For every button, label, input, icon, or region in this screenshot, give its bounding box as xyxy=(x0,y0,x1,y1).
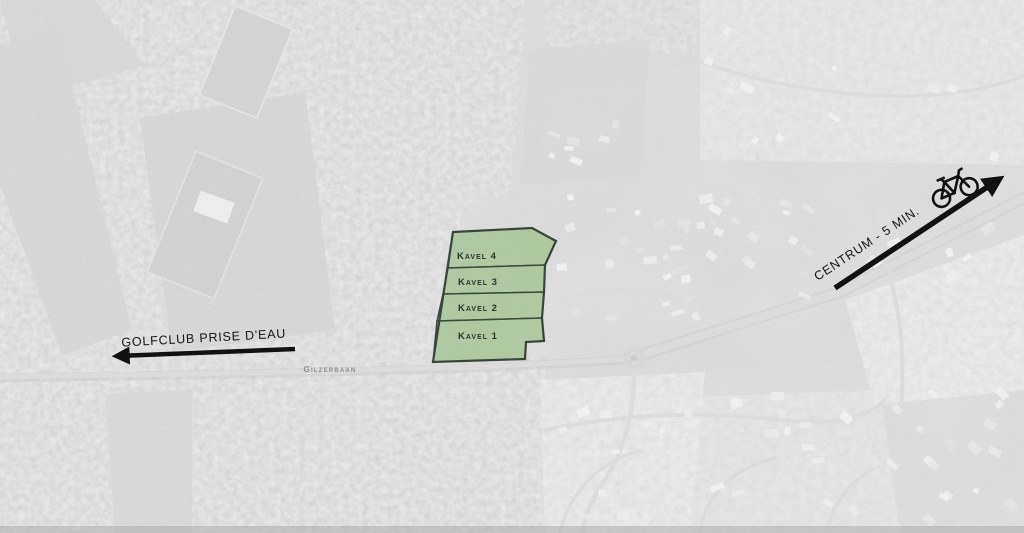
street-label-gilzerbaan: Gilzerbaan xyxy=(304,365,357,374)
aerial-map-canvas: Kavel 4 Kavel 3 Kavel 2 Kavel 1 GOLFCLUB… xyxy=(0,0,1024,533)
parcel-area: Kavel 4 Kavel 3 Kavel 2 Kavel 1 xyxy=(433,228,556,362)
parcel-label-kavel-4: Kavel 4 xyxy=(457,251,497,262)
parcel-label-kavel-1: Kavel 1 xyxy=(458,331,498,342)
parcel-label-kavel-2: Kavel 2 xyxy=(458,303,498,314)
parcel-label-kavel-3: Kavel 3 xyxy=(458,277,498,288)
aerial-site-map: Kavel 4 Kavel 3 Kavel 2 Kavel 1 GOLFCLUB… xyxy=(0,0,1024,533)
parcel-kavel-4[interactable] xyxy=(448,228,556,268)
photo-bottom-edge xyxy=(0,526,1024,533)
